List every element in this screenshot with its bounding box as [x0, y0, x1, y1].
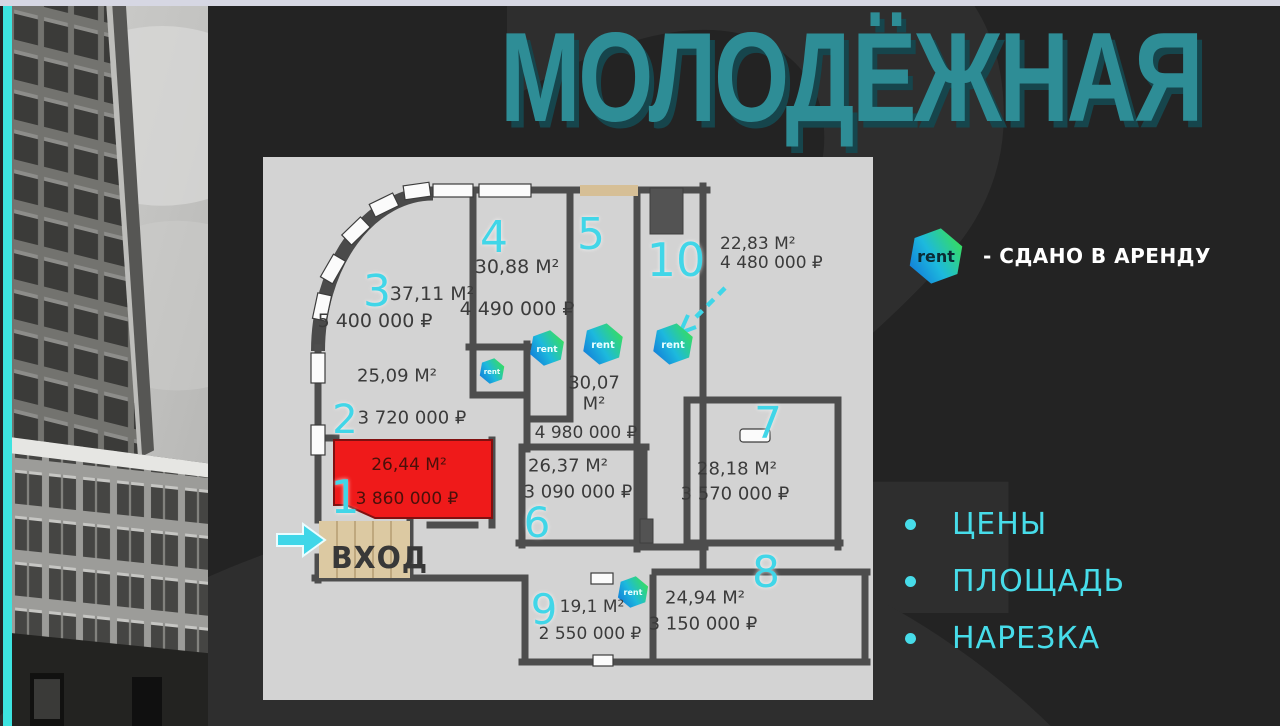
- svg-text:rent: rent: [536, 345, 558, 355]
- unit-7-area: 28,18 М²: [697, 460, 777, 481]
- page-title: МОЛОДЁЖНАЯ: [500, 14, 1201, 141]
- unit-9-price: 2 550 000 ₽: [539, 625, 642, 645]
- unit-6-number: 6: [524, 502, 551, 544]
- unit-4-number: 4: [480, 216, 508, 260]
- door-strip: [580, 185, 638, 196]
- rent-badge-unit10: rent: [651, 320, 694, 368]
- unit-6-price: 3 090 000 ₽: [524, 483, 633, 504]
- unit-1-price: 3 860 000 ₽: [356, 490, 459, 510]
- unit-8-price: 3 150 000 ₽: [649, 615, 758, 636]
- rent-legend: rent - СДАНО В АРЕНДУ: [905, 225, 1211, 287]
- bullet-label: ПЛОЩАДЬ: [952, 564, 1125, 599]
- unit-8-number: 8: [752, 551, 780, 595]
- entrance-label: ВХОД: [331, 541, 428, 576]
- bullet-list: ЦЕНЫ ПЛОЩАДЬ НАРЕЗКА: [905, 496, 1125, 667]
- unit-10-callout: 22,83 М² 4 480 000 ₽: [720, 235, 823, 273]
- unit-4-area: 30,88 М²: [475, 257, 559, 279]
- rent-badge-unit4-small: rent: [479, 356, 506, 386]
- unit-7-price: 3 570 000 ₽: [681, 485, 790, 506]
- svg-text:rent: rent: [661, 340, 685, 351]
- bullet-dot-icon: [905, 519, 916, 530]
- unit-8-area: 24,94 М²: [665, 589, 745, 610]
- unit-5-number: 5: [577, 213, 605, 257]
- rent-badge-legend-icon: rent: [905, 225, 967, 287]
- list-item: НАРЕЗКА: [905, 610, 1125, 667]
- unit-5-area: 30,07 М²: [561, 373, 627, 414]
- unit-2-area: 25,09 М²: [357, 367, 437, 388]
- unit-2-number: 2: [332, 400, 357, 440]
- unit-4-price: 4 490 000 ₽: [460, 299, 575, 321]
- bullet-dot-icon: [905, 633, 916, 644]
- unit-10-area: 22,83 М²: [720, 235, 823, 254]
- unit-2-price: 3 720 000 ₽: [358, 409, 467, 430]
- unit-1-area: 26,44 М²: [371, 456, 447, 476]
- rent-badge-unit5: rent: [581, 320, 624, 368]
- unit-5-price: 4 980 000 ₽: [535, 424, 638, 444]
- shaft-block: [650, 188, 683, 234]
- bullet-label: ЦЕНЫ: [952, 507, 1047, 542]
- unit-7-number: 7: [754, 402, 782, 446]
- bullet-label: НАРЕЗКА: [952, 621, 1100, 656]
- list-item: ПЛОЩАДЬ: [905, 553, 1125, 610]
- rent-badge-unit4: rent: [529, 328, 566, 369]
- cyan-edge-stripe: [3, 6, 12, 726]
- unit-3-price: 5 400 000 ₽: [318, 311, 433, 333]
- unit-3-number: 3: [363, 270, 391, 314]
- svg-text:rent: rent: [917, 247, 955, 266]
- legend-label: - СДАНО В АРЕНДУ: [983, 244, 1211, 268]
- unit-6-area: 26,37 М²: [528, 457, 608, 478]
- svg-text:rent: rent: [484, 368, 501, 376]
- entrance-arrow-icon: [277, 524, 325, 556]
- unit-10-price: 4 480 000 ₽: [720, 254, 823, 273]
- unit-10-number: 10: [647, 237, 706, 283]
- unit-9-area: 19,1 М²: [560, 598, 625, 618]
- floor-plan: rent rent rent rent rent 1 2 3 4 5: [263, 157, 873, 700]
- bullet-dot-icon: [905, 576, 916, 587]
- building-photo: [12, 6, 208, 726]
- shaft-block-small: [640, 519, 653, 543]
- svg-text:rent: rent: [591, 340, 615, 351]
- slide: 2 МОЛОДЁЖНАЯ: [0, 0, 1280, 726]
- svg-text:rent: rent: [624, 588, 643, 597]
- list-item: ЦЕНЫ: [905, 496, 1125, 553]
